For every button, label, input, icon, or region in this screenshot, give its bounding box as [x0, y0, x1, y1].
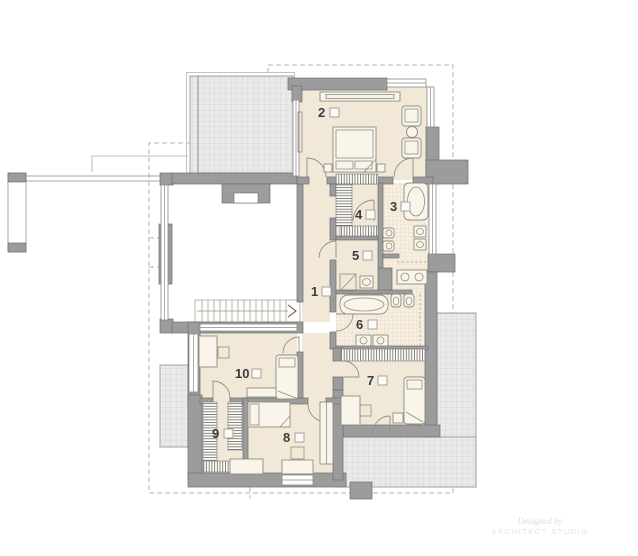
desk [199, 336, 217, 367]
vanity [397, 270, 427, 284]
washbasin [414, 239, 426, 250]
watermark-line2: ARCHITECT STUDIO [491, 527, 588, 536]
nightstand [324, 164, 332, 172]
wardrobe-room4-top [336, 174, 378, 184]
sideboard [320, 92, 400, 101]
wardrobe-room4-left [336, 184, 352, 226]
designer-watermark: Designed by ARCHITECT STUDIO [491, 516, 588, 536]
room-area-marker [366, 210, 375, 219]
round-table [407, 127, 418, 138]
wardrobe-room4-bottom [340, 226, 378, 236]
room-area-marker [295, 433, 304, 442]
terrace-roof-top-left [190, 76, 293, 173]
room-label-7: 7 [367, 373, 374, 388]
floor-hall-upper [302, 180, 330, 322]
floor-plan-page: 1 2 3 4 5 6 7 8 9 10 Designed by ARCHITE… [0, 0, 638, 556]
staircase [195, 300, 300, 322]
window-bedroom2-corner [427, 87, 434, 127]
room-label-4: 4 [355, 207, 363, 222]
double-bed [333, 127, 376, 172]
room-label-3: 3 [390, 199, 397, 214]
room-label-1: 1 [311, 284, 318, 299]
room-label-10: 10 [235, 366, 249, 381]
roof-bottom [337, 437, 476, 487]
room-area-marker [363, 251, 372, 260]
room-area-marker [322, 287, 331, 296]
room-label-5: 5 [352, 248, 359, 263]
room-area-marker [378, 376, 387, 385]
wardrobe-room7-top [341, 349, 425, 361]
wardrobe-room9-right [228, 402, 242, 450]
window-bedroom2-top [387, 79, 426, 87]
desk [282, 460, 313, 474]
nightstand [393, 413, 403, 423]
window-bath3 [429, 184, 436, 254]
room-label-9: 9 [212, 426, 219, 441]
room-area-marker [401, 202, 410, 211]
watermark-line1: Designed by [517, 516, 563, 526]
dresser [247, 388, 278, 397]
room-label-2: 2 [318, 105, 325, 120]
washbasin [360, 276, 373, 288]
window-stair-wall [200, 324, 297, 331]
lower-roof-edge [92, 156, 188, 172]
room-area-marker [224, 429, 233, 438]
window-bedroom10-left [189, 334, 198, 392]
room-label-6: 6 [356, 317, 363, 332]
glazed-wall-void [161, 185, 168, 320]
washbasin [414, 226, 426, 237]
room-area-marker [368, 320, 377, 329]
floor-plan-drawing: 1 2 3 4 5 6 7 8 9 10 Designed by ARCHITE… [0, 0, 638, 556]
room-area-marker [330, 108, 339, 117]
desk [341, 396, 360, 425]
room-area-marker [252, 369, 261, 378]
chimney-bottom [350, 482, 372, 499]
dresser [230, 459, 263, 474]
window-bottom-wall [282, 475, 313, 485]
room-label-8: 8 [283, 430, 290, 445]
nightstand [377, 164, 385, 172]
